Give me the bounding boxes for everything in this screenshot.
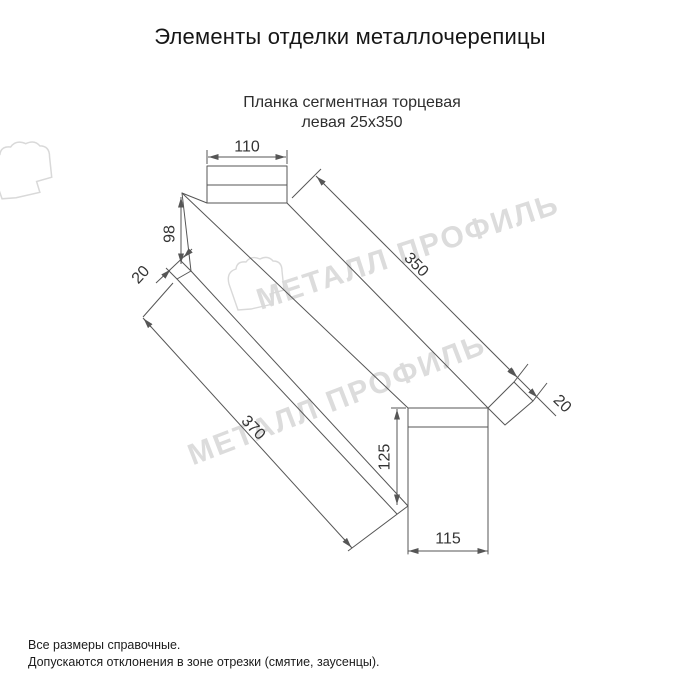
footer-note-2: Допускаются отклонения в зоне отрезки (с…	[28, 654, 380, 671]
long-edge-wall-top	[182, 193, 408, 408]
near-end-fold-tab	[488, 382, 533, 425]
dim-end-height-label: 125	[377, 444, 394, 471]
dim-right-fold-label: 20	[550, 392, 575, 417]
far-wall-edge	[182, 193, 191, 271]
watermark-text-1: МЕТАЛЛ ПРОФИЛЬ	[253, 187, 564, 316]
dim-left-fold-label: 20	[129, 263, 154, 288]
footer-notes: Все размеры справочные. Допускаются откл…	[28, 637, 380, 671]
dim-end-width-label: 115	[435, 531, 461, 548]
dim-wall-height-label: 98	[162, 225, 179, 243]
dim-top-width-label: 110	[234, 139, 260, 156]
far-wall-top-edge	[182, 193, 207, 203]
dimension-labels: 110 98 20 350 20 370 125 115	[129, 139, 575, 548]
watermark-layer: МЕТАЛЛ ПРОФИЛЬ МЕТАЛЛ ПРОФИЛЬ	[0, 142, 563, 472]
drawing-sheet: Элементы отделки металлочерепицы Планка …	[0, 0, 700, 700]
watermark-logo-2	[0, 142, 52, 199]
footer-note-1: Все размеры справочные.	[28, 637, 380, 654]
technical-drawing: МЕТАЛЛ ПРОФИЛЬ МЕТАЛЛ ПРОФИЛЬ	[0, 0, 700, 700]
far-fold-edge	[177, 271, 191, 279]
